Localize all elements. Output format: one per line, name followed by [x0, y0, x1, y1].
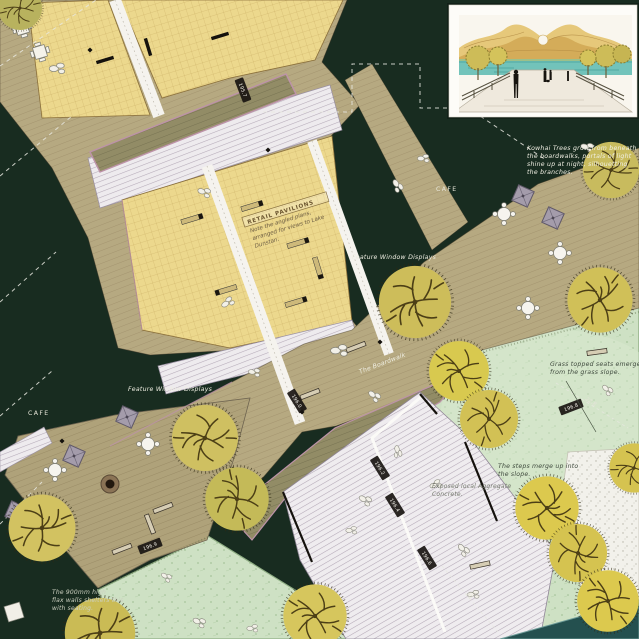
note-line: with seating. [52, 605, 93, 612]
feature-window-label-left: Feature Window Displays [128, 385, 213, 393]
cafe-label-left: CAFE [28, 410, 50, 417]
note-line: The steps merge up into [498, 462, 578, 470]
perspective-sketch-inset [447, 3, 639, 119]
note-line: flax walls shelters this [52, 597, 123, 604]
note-line: Exposed local Aggregate [432, 483, 511, 490]
note-line: the branches. [527, 168, 573, 176]
note-line: Grass topped seats emerge [550, 360, 639, 368]
note-line: The 900mm high [52, 589, 106, 596]
vanishing-sun [538, 35, 548, 45]
note-line: Kowhai Trees grow from beneath [527, 144, 637, 152]
inset-drawing [454, 10, 632, 112]
site-plan-svg: 195.7 196.0 196.2 196.4 196.6 196.9 196.… [0, 0, 639, 639]
note-line: shine up at night, silhouetting [527, 160, 628, 168]
feature-window-label-right: Feature Window Displays [352, 253, 437, 261]
note-line: the boardwalks, portals of light [527, 152, 632, 160]
note-line: the slope. [498, 470, 531, 478]
masterplan-canvas: 195.7 196.0 196.2 196.4 196.6 196.9 196.… [0, 0, 639, 639]
note-line: Concrete. [432, 491, 463, 498]
fire-pit [101, 475, 119, 493]
note-line: from the grass slope. [550, 368, 620, 376]
cafe-label-right: CAFE [436, 186, 458, 193]
